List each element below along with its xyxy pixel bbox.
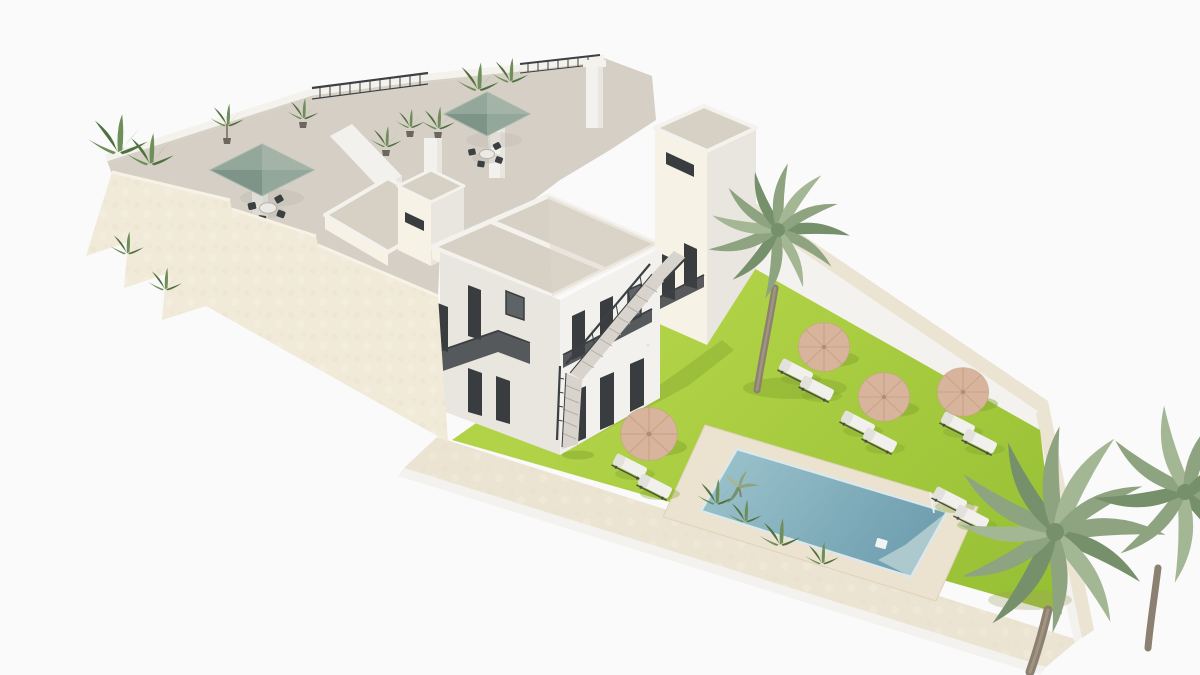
stair-shadow xyxy=(562,451,594,460)
wall-lamp xyxy=(646,343,649,346)
render-canvas: White Mediterranean-style apartment buil… xyxy=(0,0,1200,675)
chimney xyxy=(583,60,606,128)
property-render xyxy=(0,0,1200,675)
